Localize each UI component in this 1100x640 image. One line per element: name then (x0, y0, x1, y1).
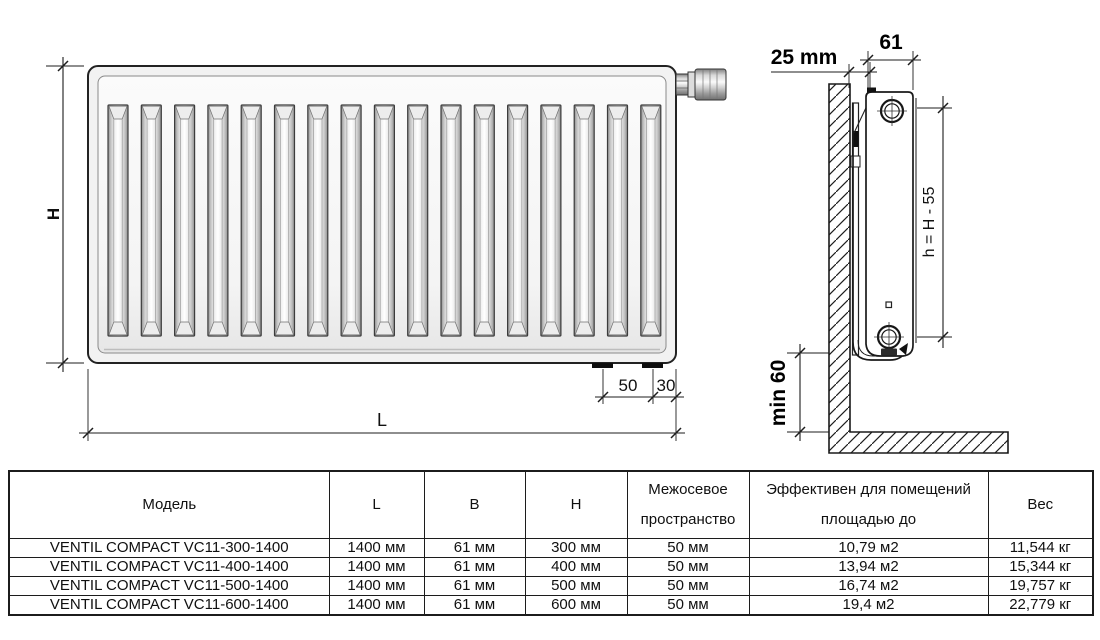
side-view-drawing: 25 mm 61 h = H - 55 min 60 (740, 0, 1100, 465)
radiator-channel (508, 105, 528, 336)
bottom-connection-left (592, 363, 613, 368)
table-cell: VENTIL COMPACT VC11-600-1400 (9, 596, 329, 616)
dim-50-label: 50 (619, 376, 638, 395)
table-row: VENTIL COMPACT VC11-500-14001400 мм61 мм… (9, 577, 1093, 596)
table-row: VENTIL COMPACT VC11-600-14001400 мм61 мм… (9, 596, 1093, 616)
dim-wall-gap: 25 mm (771, 46, 877, 90)
table-cell: 1400 мм (329, 577, 424, 596)
table-cell: 15,344 кг (988, 558, 1093, 577)
table-cell: 1400 мм (329, 539, 424, 558)
table-cell: VENTIL COMPACT VC11-300-1400 (9, 539, 329, 558)
col-header-weight: Вес (988, 471, 1093, 539)
table-cell: 10,79 м2 (749, 539, 988, 558)
valve-stem (688, 72, 695, 97)
table-cell: 1400 мм (329, 558, 424, 577)
table-cell: 300 мм (525, 539, 627, 558)
radiator-channel (474, 105, 494, 336)
dim-length: L (79, 369, 685, 441)
table-row: VENTIL COMPACT VC11-300-14001400 мм61 мм… (9, 539, 1093, 558)
radiator-channel (441, 105, 461, 336)
table-body: VENTIL COMPACT VC11-300-14001400 мм61 мм… (9, 539, 1093, 616)
front-view-drawing: H L 50 30 (0, 0, 740, 465)
table-cell: 400 мм (525, 558, 627, 577)
radiator-channel (374, 105, 394, 336)
col-header-length: L (329, 471, 424, 539)
table-cell: 19,757 кг (988, 577, 1093, 596)
table-cell: 500 мм (525, 577, 627, 596)
drain-plug (886, 302, 892, 308)
valve-nut (676, 74, 688, 95)
dim-bracket-offsets: 50 30 (595, 369, 684, 404)
radiator-channel (208, 105, 228, 336)
dim-floor-clearance-label: min 60 (767, 360, 790, 427)
table-cell: 11,544 кг (988, 539, 1093, 558)
col-header-room-area: Эффективен для помещений площадью до (749, 471, 988, 539)
dim-pipe-spacing-label: h = H - 55 (921, 187, 938, 258)
dim-floor-clearance: min 60 (767, 344, 829, 441)
table-cell: VENTIL COMPACT VC11-400-1400 (9, 558, 329, 577)
col-header-depth: B (424, 471, 525, 539)
channel-group (108, 105, 661, 336)
table-cell: 61 мм (424, 577, 525, 596)
radiator-channel (275, 105, 295, 336)
table-cell: 13,94 м2 (749, 558, 988, 577)
table-cell: 600 мм (525, 596, 627, 616)
col-header-height: H (525, 471, 627, 539)
table-cell: 50 мм (627, 539, 749, 558)
table-cell: 19,4 м2 (749, 596, 988, 616)
radiator-channel (408, 105, 428, 336)
table-cell: 1400 мм (329, 596, 424, 616)
valve-head (695, 69, 726, 100)
table-cell: 61 мм (424, 539, 525, 558)
table-row: VENTIL COMPACT VC11-400-14001400 мм61 мм… (9, 558, 1093, 577)
dim-wall-gap-label: 25 mm (771, 46, 838, 69)
table-cell: 16,74 м2 (749, 577, 988, 596)
table-cell: 50 мм (627, 596, 749, 616)
col-header-model: Модель (9, 471, 329, 539)
radiator-channel (141, 105, 161, 336)
radiator-channel (541, 105, 561, 336)
radiator-channel (108, 105, 128, 336)
table-cell: 22,779 кг (988, 596, 1093, 616)
radiator-channel (341, 105, 361, 336)
table-cell: 50 мм (627, 577, 749, 596)
dim-depth: 61 (860, 31, 921, 90)
spec-table: Модель L B H Межосевое пространство Эффе… (8, 470, 1094, 616)
radiator-side-profile (853, 88, 916, 361)
radiator-channel (175, 105, 195, 336)
dim-depth-label: 61 (879, 31, 903, 54)
thermostatic-valve (676, 69, 726, 100)
radiator-channel (574, 105, 594, 336)
table-cell: 50 мм (627, 558, 749, 577)
table-cell: 61 мм (424, 558, 525, 577)
radiator-channel (241, 105, 261, 336)
page: H L 50 30 (0, 0, 1100, 640)
dim-length-label: L (377, 410, 387, 430)
bottom-connection-right (642, 363, 663, 368)
dim-height-label: H (44, 208, 63, 220)
dim-height: H (44, 57, 84, 372)
radiator-channel (608, 105, 628, 336)
dim-pipe-spacing: h = H - 55 (917, 96, 952, 348)
radiator-channel (308, 105, 328, 336)
air-vent-cap (867, 88, 876, 93)
table-cell: VENTIL COMPACT VC11-500-1400 (9, 577, 329, 596)
table-header-row: Модель L B H Межосевое пространство Эффе… (9, 471, 1093, 539)
table-cell: 61 мм (424, 596, 525, 616)
dim-30-label: 30 (657, 376, 676, 395)
radiator-channel (641, 105, 661, 336)
col-header-pipe-spacing: Межосевое пространство (627, 471, 749, 539)
